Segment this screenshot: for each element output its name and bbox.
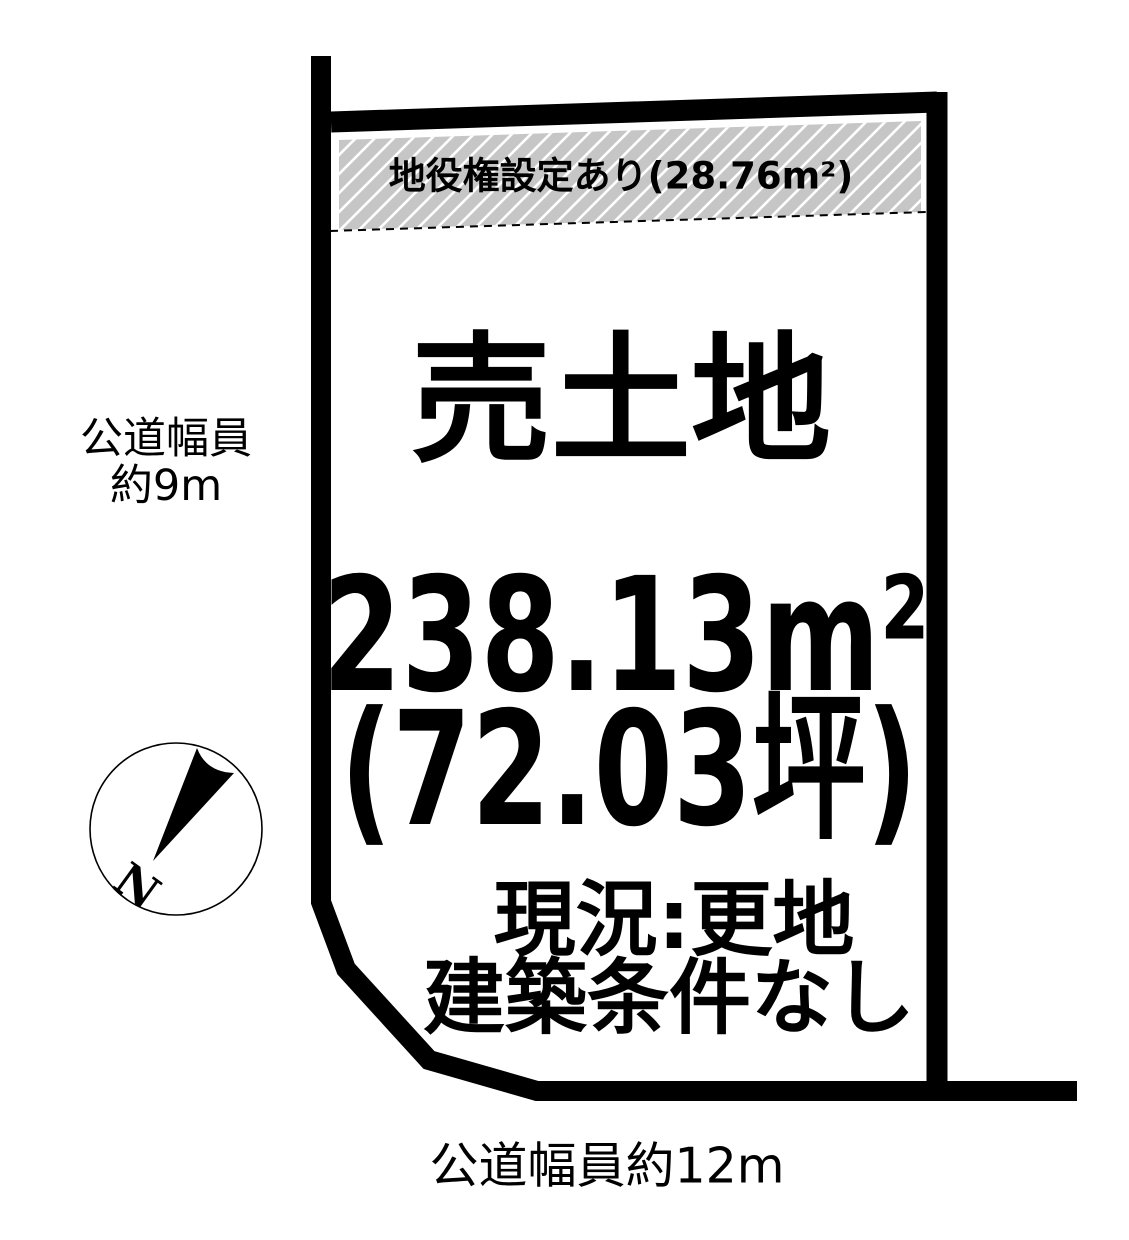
easement-label: 地役権設定あり(28.76m²) [389,158,854,195]
land-plot-diagram: 地役権設定あり(28.76m²) 売土地 238.13m² (72.03坪) 現… [0,0,1129,1240]
plot-boundary-north [331,102,937,122]
road-width-label-left: 公道幅員 約9m [80,416,252,510]
plot-title: 売土地 [411,332,831,472]
road-width-label-bottom: 公道幅員約12m [429,1142,784,1191]
area-tsubo: (72.03坪) [340,691,918,849]
road-width-left-line2: 約9m [80,463,252,510]
road-width-left-line1: 公道幅員 [80,416,252,463]
status-current-condition: 現況:更地 [494,880,855,962]
status-building-conditions: 建築条件なし [423,958,915,1040]
